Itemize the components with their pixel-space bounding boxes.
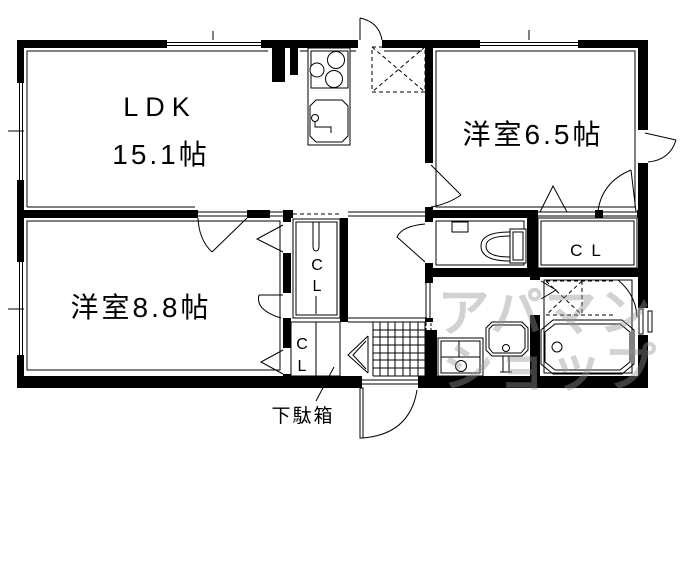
window-ldk-top (167, 31, 261, 46)
refrigerator-space (372, 47, 425, 92)
door-toilet (397, 224, 425, 262)
burner-icon (326, 71, 343, 88)
label-ldk: LDK (123, 92, 197, 122)
door-ldk-to-room88 (198, 218, 247, 252)
washroom-sliding-door (426, 283, 430, 318)
window-room88-left (8, 262, 24, 355)
paper-holder (452, 222, 468, 232)
entrance-tile-grid (373, 322, 425, 376)
window-ldk-left (8, 83, 24, 180)
label-closet-north: CL (570, 241, 610, 260)
floor-plan-page: LDK 15.1帖 洋室6.5帖 洋室8.8帖 CL C L C L 下駄箱 ア… (0, 0, 690, 575)
faucet-icon (312, 115, 319, 122)
entrance-step (348, 318, 427, 322)
label-closet-tall-l: L (313, 278, 324, 295)
door-closet-north-left-leaf (540, 186, 567, 212)
label-getabako: 下駄箱 (271, 405, 334, 427)
entrance-door (360, 388, 417, 438)
kitchen (308, 47, 425, 145)
door-kitchen-north (360, 18, 382, 40)
label-ldk-size: 15.1帖 (112, 139, 210, 170)
ldk-outline (27, 51, 422, 207)
watermark-line2: ショップ (442, 340, 658, 398)
watermark-line1: アパマン (438, 285, 653, 343)
burner-icon (310, 63, 324, 77)
watermark-logo: アパマン ショップ (438, 285, 658, 398)
label-closet-small-l: L (298, 358, 309, 375)
window-room65-top (480, 30, 578, 46)
door-room65-exterior (645, 133, 676, 162)
floor-plan-drawing: LDK 15.1帖 洋室6.5帖 洋室8.8帖 CL C L C L 下駄箱 ア… (0, 0, 690, 575)
door-shoe-cabinet (348, 336, 368, 373)
label-closet-small-c: C (296, 336, 310, 353)
door-room88-arc (258, 295, 283, 318)
burner-icon (328, 52, 345, 69)
label-room65: 洋室6.5帖 (463, 119, 604, 150)
toilet-room (452, 222, 526, 263)
door-closet-tall-leaf (257, 225, 283, 252)
label-closet-tall-c: C (311, 257, 325, 274)
label-room88: 洋室8.8帖 (71, 292, 212, 323)
door-closet-north-right (598, 170, 636, 212)
shoe-cabinet-box (316, 322, 340, 376)
toilet-tank (510, 229, 526, 263)
